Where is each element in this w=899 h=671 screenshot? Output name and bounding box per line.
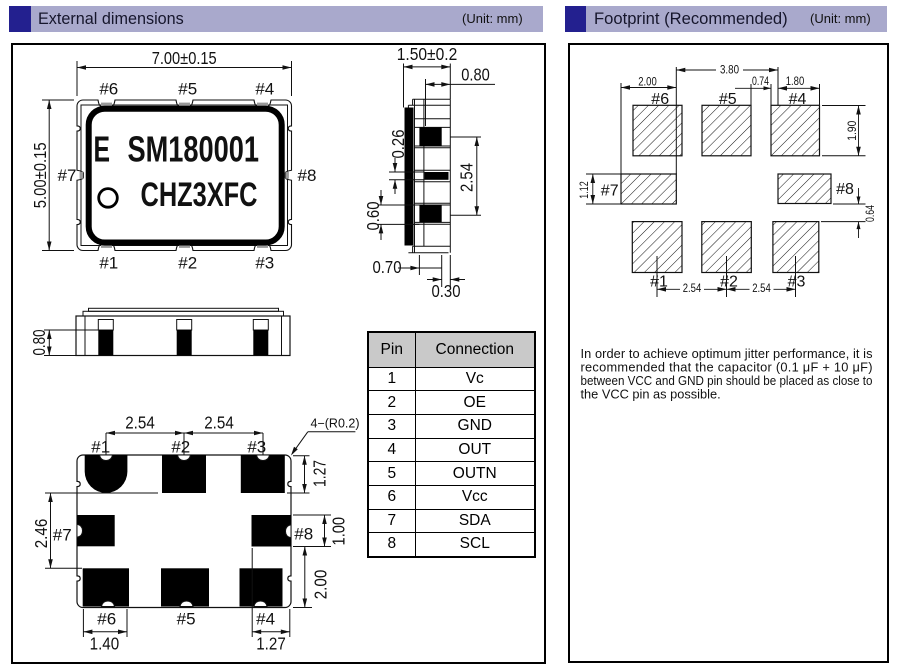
- svg-text:the VCC pin as possible.: the VCC pin as possible.: [581, 387, 721, 402]
